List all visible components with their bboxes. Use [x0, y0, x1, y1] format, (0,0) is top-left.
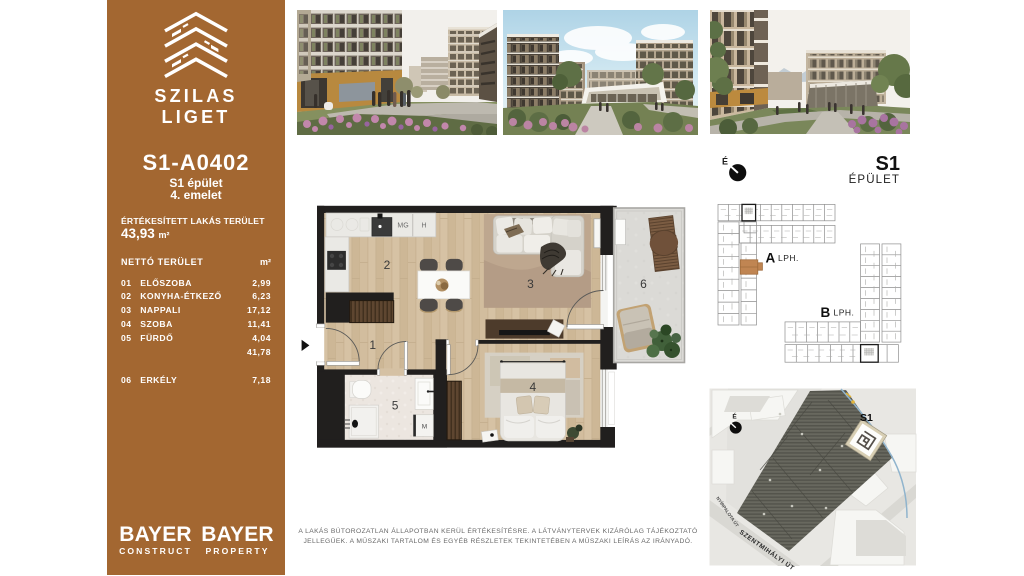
svg-text:S1: S1: [860, 412, 873, 424]
svg-text:MG: MG: [397, 223, 408, 230]
svg-text:LPH.: LPH.: [834, 308, 855, 318]
svg-text:4: 4: [530, 380, 537, 394]
svg-text:H: H: [421, 223, 426, 230]
svg-text:A: A: [766, 251, 776, 266]
svg-text:É: É: [732, 412, 737, 421]
svg-text:B: B: [821, 305, 831, 320]
svg-text:LPH.: LPH.: [778, 253, 799, 263]
svg-text:6: 6: [640, 277, 647, 291]
svg-text:1: 1: [369, 338, 376, 352]
svg-text:3: 3: [527, 277, 534, 291]
svg-text:5: 5: [392, 399, 399, 413]
svg-text:2: 2: [384, 258, 391, 272]
svg-text:M: M: [422, 424, 427, 431]
svg-text:É: É: [722, 157, 728, 167]
